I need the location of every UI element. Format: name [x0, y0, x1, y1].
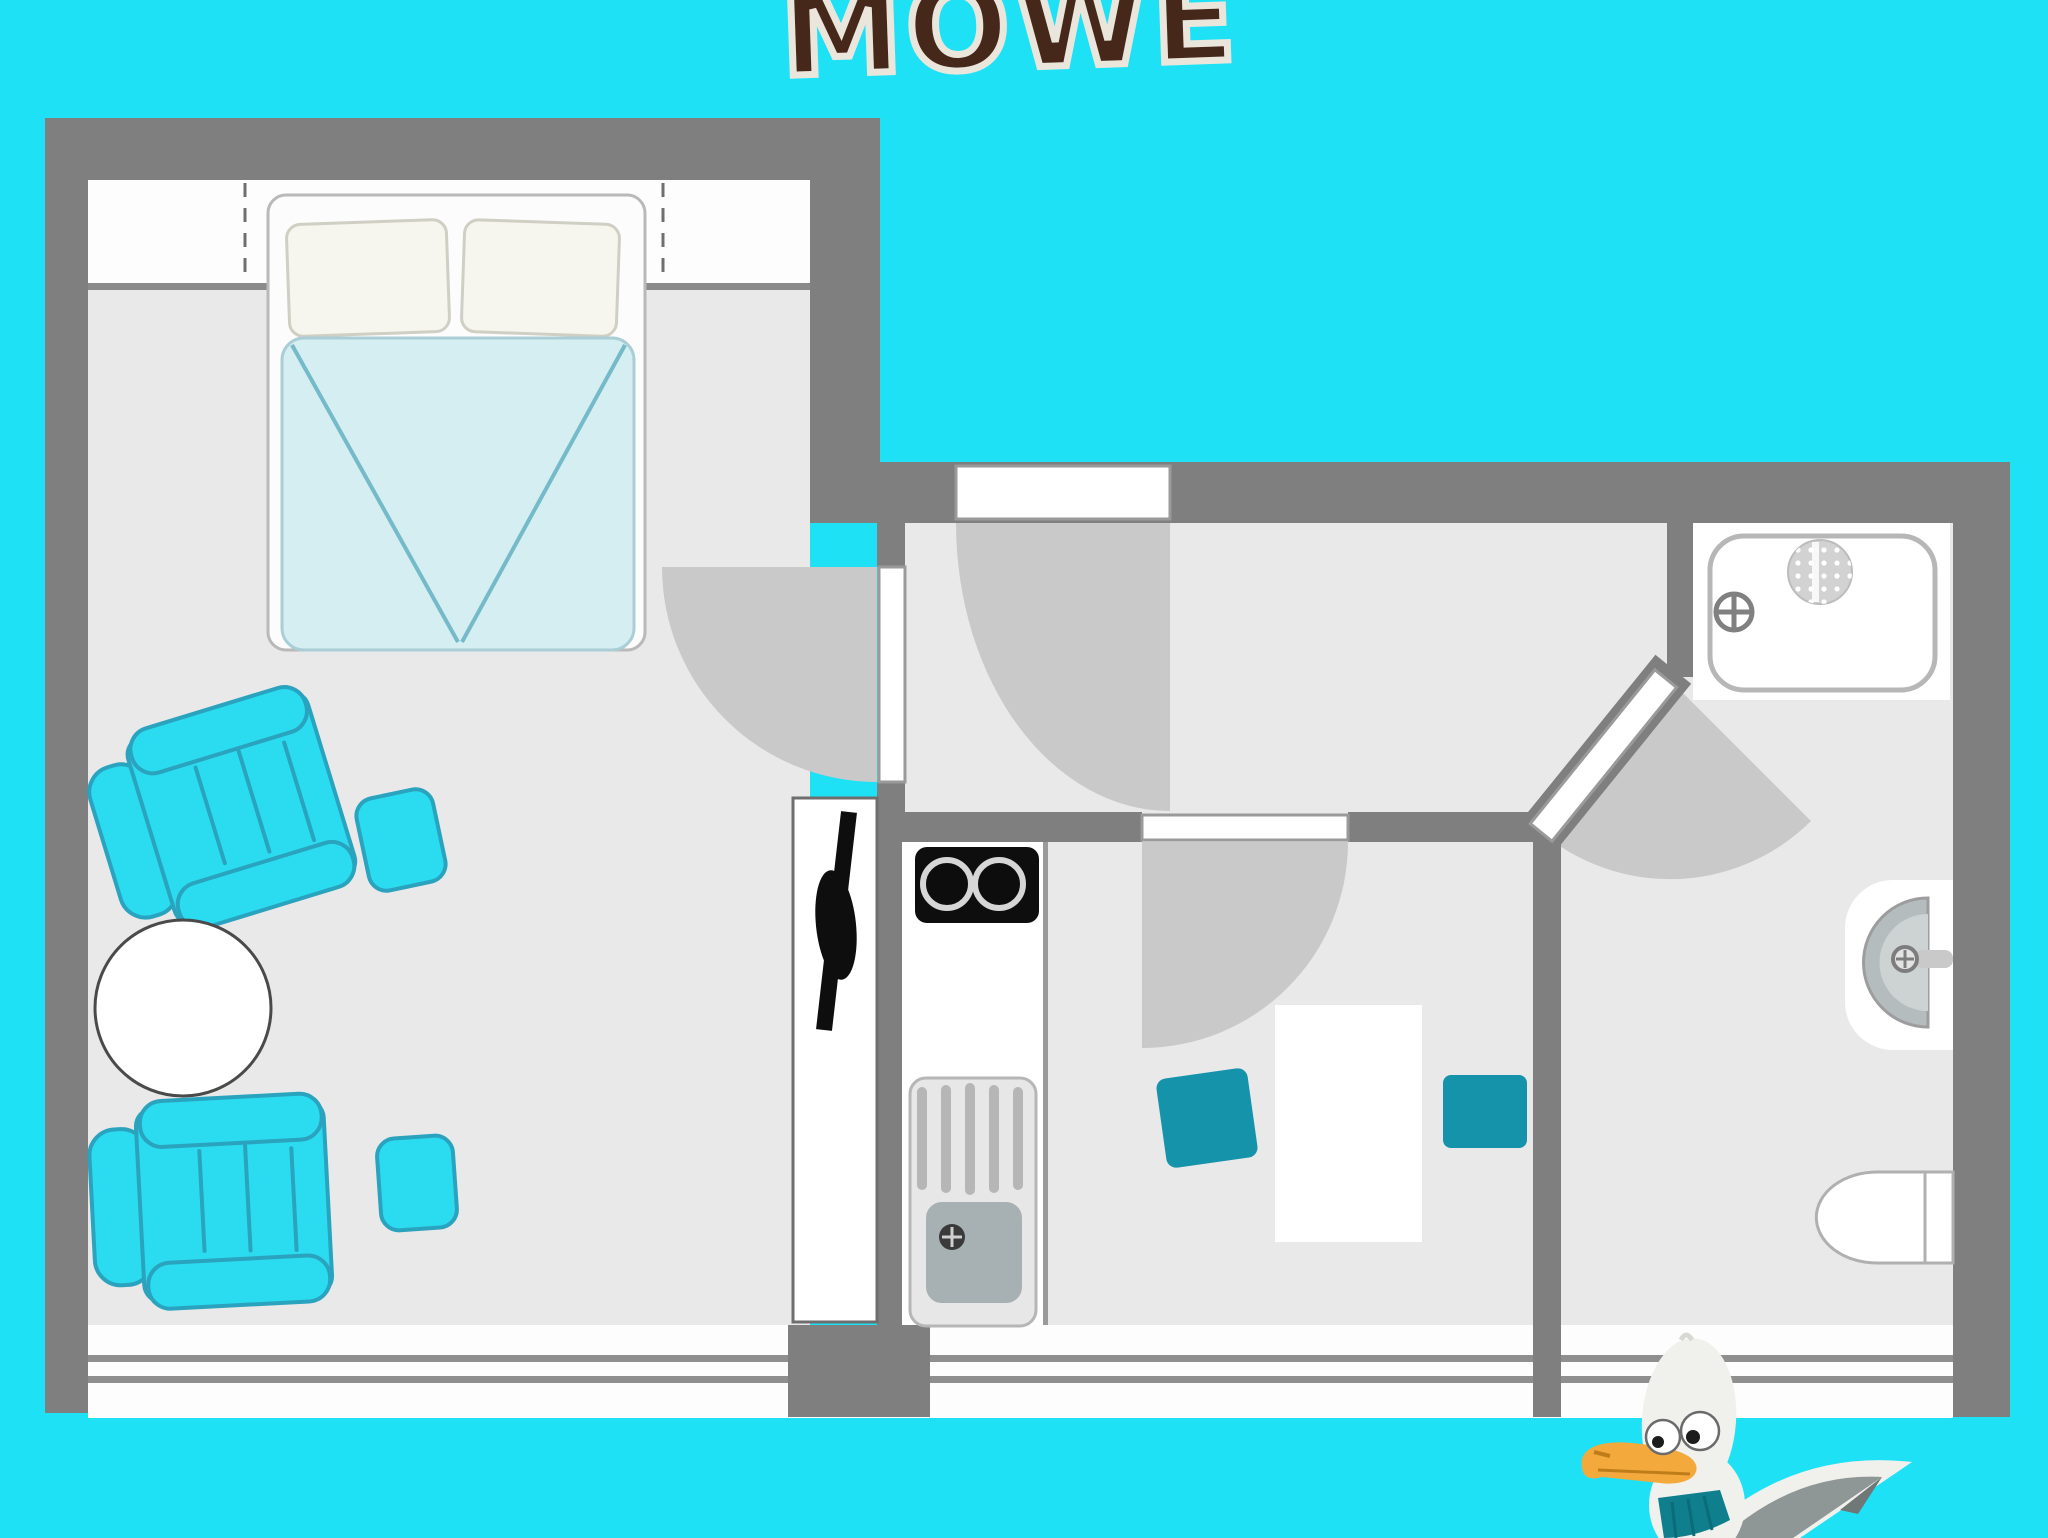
outer-wall-left — [45, 118, 88, 1413]
sink-faucet — [939, 1224, 965, 1250]
wardrobe — [793, 798, 877, 1322]
bathroom-entry-stub-wall — [1667, 515, 1693, 677]
seagull-eye-right — [1681, 1412, 1719, 1450]
bed-blanket — [282, 338, 634, 650]
outer-wall-right — [1953, 462, 2010, 1417]
floor-plan — [0, 0, 2048, 1538]
living-door-jamb-top — [877, 523, 905, 567]
bed-pillow-right — [461, 219, 620, 336]
tub-faucet-icon — [1716, 594, 1752, 630]
stove-burner-right — [975, 860, 1023, 908]
sink-basin — [924, 1200, 1024, 1305]
dining-bath-wall — [1533, 812, 1561, 1417]
kitchen-sink — [910, 1078, 1036, 1326]
seagull-pupil-left — [1652, 1436, 1664, 1448]
counter-edge — [1043, 842, 1048, 1325]
hall-dining-wall-left — [877, 812, 1142, 842]
bottom-wall-pier — [788, 1325, 930, 1417]
bathtub-alcove — [1693, 523, 1950, 700]
living-kitchen-wall — [877, 782, 905, 1325]
toilet — [1816, 1172, 1953, 1263]
dining-table — [1275, 1005, 1422, 1242]
dining-room-door-opening — [1142, 815, 1348, 840]
double-bed — [268, 195, 645, 650]
entrance-door-leaf — [956, 466, 1170, 519]
kitchen-counter — [902, 842, 1048, 1326]
ottoman-upper — [353, 786, 449, 894]
seagull-eye-left — [1646, 1420, 1680, 1454]
armchair-arm-top — [139, 1093, 323, 1148]
dining-chair-right — [1443, 1075, 1527, 1148]
round-side-table — [95, 920, 271, 1096]
armchair-arm-bottom — [147, 1254, 331, 1309]
bath-sink-faucet — [1893, 947, 1953, 971]
living-room-right-wall — [810, 118, 880, 523]
ottoman-lower — [376, 1134, 458, 1231]
bathroom-sink — [1845, 880, 1953, 1050]
bed-pillow-left — [286, 219, 450, 337]
toilet-bowl — [1816, 1172, 1940, 1263]
stove-burner-left — [923, 860, 971, 908]
stove — [915, 847, 1039, 923]
floor-plan-page: MÖWE — [0, 0, 2048, 1538]
living-room-door-leaf — [879, 567, 905, 782]
shower-head-icon — [1788, 540, 1852, 604]
dining-chair-left — [1155, 1067, 1259, 1169]
outer-wall-top-left — [45, 118, 880, 180]
seagull-pupil-right — [1686, 1430, 1700, 1444]
toilet-tank — [1925, 1172, 1953, 1263]
